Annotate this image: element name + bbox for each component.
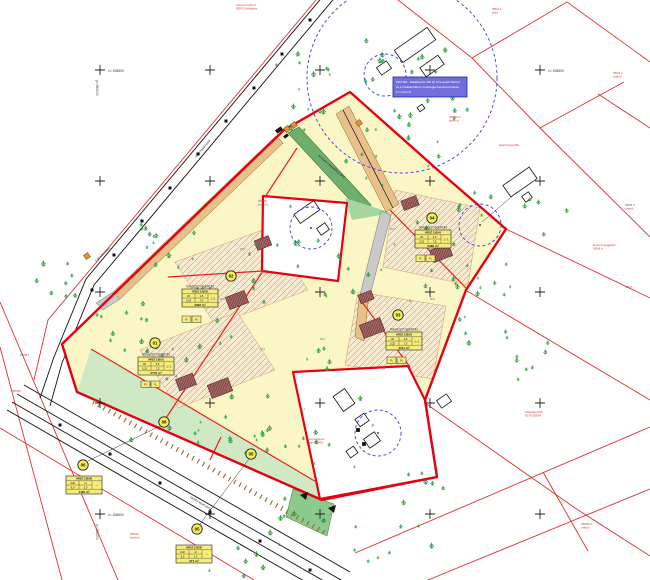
plot-number-marker: 06 [78,460,88,470]
tree-icon [298,88,300,91]
embankment-tick [187,453,189,457]
coord-label-x: x= 458850 [548,69,564,73]
table-cell-text: 1 / 1 [166,364,172,368]
embankment-tick [145,430,147,434]
tree-icon [144,226,148,231]
building-existing [437,394,452,408]
building-existing [417,104,425,112]
table-cell-text: HRSZ 1305/1 [148,358,164,362]
grid-cross-icon [535,398,545,408]
plot-number-text: 01 [153,341,158,346]
tree-icon [64,294,67,298]
grid-cross-icon [205,176,215,186]
plot-data-table: TERVEZETT BEÉPÍTÉSHRSZ 1305/4304,50,257,… [415,225,451,248]
table-cell-text: HRSZ 1305/3 [396,333,412,337]
embankment-tick [281,506,283,510]
table-cell-text: 3,0 [84,485,88,489]
table-cell-text: 0,25 [186,298,192,302]
utility-pole [91,289,94,292]
embankment-tick [113,412,115,416]
embankment-tick [249,489,251,493]
plot-number-text: 06 [162,420,167,425]
embankment-tick [244,486,246,490]
table-cell-text: 1420 m² [78,490,89,494]
tree-icon [307,108,309,111]
tree-icon [473,191,476,195]
plot-number-text: 05 [195,527,200,532]
embankment-tick [176,447,178,451]
utility-pole [309,569,312,572]
table-cell-text: 0,25 [142,366,148,370]
plot-number-marker: 05 [246,449,256,459]
table-cell-text: 7,5 [404,341,408,345]
plot-data-table: HRSZ 1305/5zöldút6,03,0—671 m² [176,545,212,563]
plot-data-table: TERVEZETT BEÉPÍTÉSHRSZ 1305/1304,50,257,… [138,352,174,375]
parking-label: P₁ [419,257,422,261]
parcel-label: 055/4 cszántó [613,71,623,78]
tree-icon [565,208,569,213]
embankment-tick [275,503,277,507]
tree-icon [410,69,414,74]
tree-icon [489,194,493,199]
table-cell-text: 0,25 [390,341,396,345]
grid-cross-icon [95,509,105,519]
embankment-tick [160,438,162,442]
spot-height: 94,0 [240,248,245,251]
embankment-tick [119,415,121,419]
tree-icon [325,66,328,70]
embankment-tick [202,462,204,466]
embankment-tick [270,500,272,504]
embankment-tick [140,427,142,431]
grid-cross-icon [315,65,325,75]
table-cell-text: 1 / 1 [210,296,216,300]
embankment-tick [108,409,110,413]
building-existing [394,27,435,62]
tree-icon [311,71,316,77]
tree-icon [393,109,396,113]
tree-icon [493,281,496,285]
utility-pole [141,220,144,223]
tree-icon [298,61,301,64]
note-line: 5 m² közmű [396,90,411,94]
plot-number-marker: 02 [226,271,236,281]
plot-number-marker: 03 [393,310,403,320]
plot-number-text: 04 [430,216,435,221]
tree-icon [254,551,259,557]
parking-label: P₂ [195,318,198,322]
tree-icon [291,104,295,110]
spot-height: 93,4 [320,338,325,341]
tree-icon [148,231,152,236]
tree-icon [464,331,467,335]
tree-icon [523,203,527,208]
parking-label: P₁ [144,383,147,387]
plot-number-text: 03 [396,313,401,318]
tree-icon [278,515,283,521]
table-cell-text: — [96,484,99,487]
parcel-label: kivett tanya 05a [499,143,520,147]
table-cell-text: 671 m² [189,559,199,563]
plot-number-text: 06 [81,463,86,468]
tree-icon [479,286,482,289]
note-box: PRV 661 - kialakítandó 160 fm vízvezeték… [393,77,467,97]
table-cell-text: HRSZ 1305/6 [76,477,92,481]
road-label: 3 db kőris fasor [94,246,111,263]
table-cell-text: út [84,481,86,485]
building-dark-dot [357,429,360,432]
embankment-tick [234,480,236,484]
embankment-tick [155,435,157,439]
spot-height: 93,9 [260,348,265,351]
grid-cross-icon [95,176,105,186]
embankment-tick [213,468,215,472]
parcel-label: külterület 05b6070 055/64 [525,410,543,417]
tree-icon [441,486,445,491]
plot-data-table: HRSZ 1305/6zöldút6,03,0—1420 m² [66,476,102,494]
tree-icon [367,559,370,563]
utility-pole [113,254,116,257]
parcel-label: 055/60-2kivett út [449,115,461,122]
tree-icon [515,355,518,359]
utility-pole [169,187,172,190]
embankment-tick [197,459,199,463]
embankment-tick [166,441,168,445]
plot-number-text: 05 [249,452,254,457]
tree-icon [542,232,546,237]
table-cell-text: 6,0 [71,485,75,489]
tree-icon [436,140,438,143]
tree-icon [453,108,457,113]
tree-icon [504,329,507,333]
embankment-tick [254,492,256,496]
tree-icon [244,558,248,563]
table-cell-text: HRSZ 1305/5 [186,546,202,550]
embankment-tick [103,406,105,410]
table-cell-text: 4,5 [433,235,437,239]
tree-icon [430,481,434,486]
tree-icon [458,317,462,322]
utility-pole [225,120,228,123]
tree-icon [388,551,391,555]
parcel-label: 055/65 bszántó [581,522,593,529]
tree-icon [536,200,540,205]
table-cell-text: 7,5 [433,239,437,243]
tree-icon [354,525,357,529]
note-line: PRV 661 - kialakítandó 160 fm vízvezeték… [396,80,460,84]
coord-label-x: x= 458850 [108,69,124,73]
site-plan-canvas: x= 458850 y= 562000 x= 458850 x= 458650 … [0,0,650,580]
utility-pole [109,453,112,456]
tree-icon [399,524,403,528]
tree-icon [353,548,356,551]
table-cell-text: 6,0 [181,554,185,558]
coord-label-x: x= 458650 [108,513,124,517]
plot-data-table: TERVEZETT BEÉPÍTÉSHRSZ 1305/2304,50,257,… [182,284,218,307]
tree-icon [64,281,67,285]
parking-label: P₂ [154,383,157,387]
tree-icon [509,285,512,288]
table-cell-text: — [206,553,209,556]
tree-icon [464,315,466,318]
parking-label: P₁ [185,318,188,322]
parcel-label: 055/54kivett út [130,532,140,539]
tree-icon [364,38,368,43]
tree-icon [531,365,534,369]
table-cell-text: zöld [180,550,185,554]
coord-label-y: y= 562000 [95,80,99,96]
spot-height: 92,8 [430,298,435,301]
tree-icon [506,336,509,340]
tree-icon [73,293,77,298]
well-point [479,224,481,226]
plot-data-table: TERVEZETT BEÉPÍTÉSHRSZ 1305/3304,50,257,… [386,327,422,350]
tree-icon [35,278,39,283]
tree-icon [465,107,469,112]
tree-icon [378,58,383,64]
tree-icon [546,341,549,345]
tree-icon [397,114,402,120]
embankment-tick [239,483,241,487]
parcel-label: 055/51 [20,353,29,357]
tree-icon [406,135,411,141]
tree-icon [437,154,441,159]
parking-label: P₂ [429,257,432,261]
table-cell-text: 0,25 [419,239,425,243]
table-cell-text: 7,5 [200,298,204,302]
tree-icon [146,245,149,249]
plot-number-marker: 04 [427,213,437,223]
spot-height: 93,6 [220,298,225,301]
parking-label: P₂ [400,359,403,363]
tree-icon [515,358,519,363]
embankment-tick [192,456,194,460]
table-cell-text: 2922 m² [194,303,205,307]
tree-icon [477,276,480,279]
utility-pole [59,424,62,427]
tree-icon [66,262,69,266]
tree-icon [261,564,266,570]
tree-icon [296,51,301,57]
table-cell-text: 4,5 [200,294,204,298]
building-dark-dot [363,443,366,446]
well-point [377,432,379,434]
table-cell-text: 1 / 1 [414,339,420,343]
grid-cross-icon [95,287,105,297]
tree-icon [407,122,411,128]
tree-icon [426,98,430,103]
parcel-label: kivett anyaggödör055/6 b [593,243,616,250]
utility-pole [159,482,162,485]
tree-icon [475,291,479,296]
plot-number-marker: 01 [150,338,160,348]
tree-icon [152,241,155,244]
parking-label: P₁ [390,359,393,363]
embankment-tick [218,471,220,475]
embankment-tick [265,497,267,501]
plot-number-marker: 05 [192,524,202,534]
table-cell-text: 4,5 [156,362,160,366]
plot-number-text: 02 [229,274,234,279]
parcel-label: 055/52 [12,389,21,393]
embankment-tick [228,477,230,481]
table-cell-text: HRSZ 1305/2 [192,290,208,294]
table-cell-text: 1 / 1 [443,237,449,241]
spot-height: 94,1 [180,388,185,391]
tree-icon [236,545,240,550]
parcel-label: Tervezett 20 kV055/71 földkábel [236,3,258,10]
tree-icon [154,233,158,238]
table-cell-text: 4,5 [404,337,408,341]
tree-icon [70,273,73,277]
tree-icon [417,57,420,61]
tree-icon [467,340,472,346]
tree-icon [49,290,53,295]
tree-icon [525,367,528,371]
grid-cross-icon [535,509,545,519]
embankment-tick [171,444,173,448]
spot-height: 93,1 [300,408,305,411]
utility-pole [309,19,312,22]
grid-cross-icon [95,65,105,75]
table-cell-text: zöld [70,481,75,485]
grid-cross-icon [425,509,435,519]
utility-pole [259,540,262,543]
parcel-label: kivett tanya ésudvar 055/63 [306,437,325,444]
tree-icon [242,573,246,578]
table-cell-text: 2775 m² [150,371,161,375]
tree-icon [429,543,434,549]
embankment-tick [223,474,225,478]
embankment-tick [150,432,152,436]
embankment-tick [134,424,136,428]
tree-icon [377,556,380,559]
building-existing [503,167,537,197]
monument-orange [84,253,91,260]
embankment-tick [260,494,262,498]
road-label: 055/54 kivett közút [190,495,213,511]
tree-icon [401,500,405,506]
spot-height: 92,5 [390,228,395,231]
table-cell-text: 2011 m² [398,346,409,350]
grid-cross-icon [205,65,215,75]
tree-icon [329,73,331,76]
tree-icon [443,47,448,53]
table-cell-text: 2989 m² [427,244,438,248]
embankment-tick [129,421,131,425]
tree-icon [420,54,425,60]
tree-icon [275,63,278,66]
cadastral-map: x= 458850 y= 562000 x= 458850 x= 458650 … [0,0,650,580]
table-cell-text: út [194,550,196,554]
table-cell-text: 7,5 [156,366,160,370]
tree-icon [283,514,286,518]
grid-cross-icon [535,287,545,297]
utility-pole [281,53,284,56]
tree-icon [41,261,46,267]
tree-icon [417,524,420,527]
tree-icon [408,112,413,118]
parcel-label: 055/2 berdő [492,7,502,14]
table-cell-text: HRSZ 1305/4 [425,231,441,235]
coord-label-y: y= 562000 [95,524,99,540]
embankment-tick [124,418,126,422]
embankment-tick [181,450,183,454]
parcel-label: 055/59kivett út [258,199,268,206]
parcel-label: 055/5 bszántó [625,203,635,210]
tree-icon [129,437,134,443]
well-point [310,227,312,229]
tree-icon [505,262,508,266]
parcel-label: 055/7 [625,285,633,289]
table-cell-text: 3,0 [194,554,198,558]
tree-icon [543,349,547,354]
utility-pole [253,87,256,90]
tree-icon [503,293,506,297]
tree-icon [208,569,211,572]
tree-icon [140,223,143,227]
tree-icon [283,496,287,500]
tree-icon [371,77,375,82]
embankment-tick [207,465,209,469]
tree-icon [517,377,520,381]
tree-icon [268,530,273,536]
grid-cross-icon [535,65,545,75]
plot-number-marker: 06 [159,417,169,427]
note-line: és a csatlakozáshoz szükséges bekötőveze… [396,85,460,89]
